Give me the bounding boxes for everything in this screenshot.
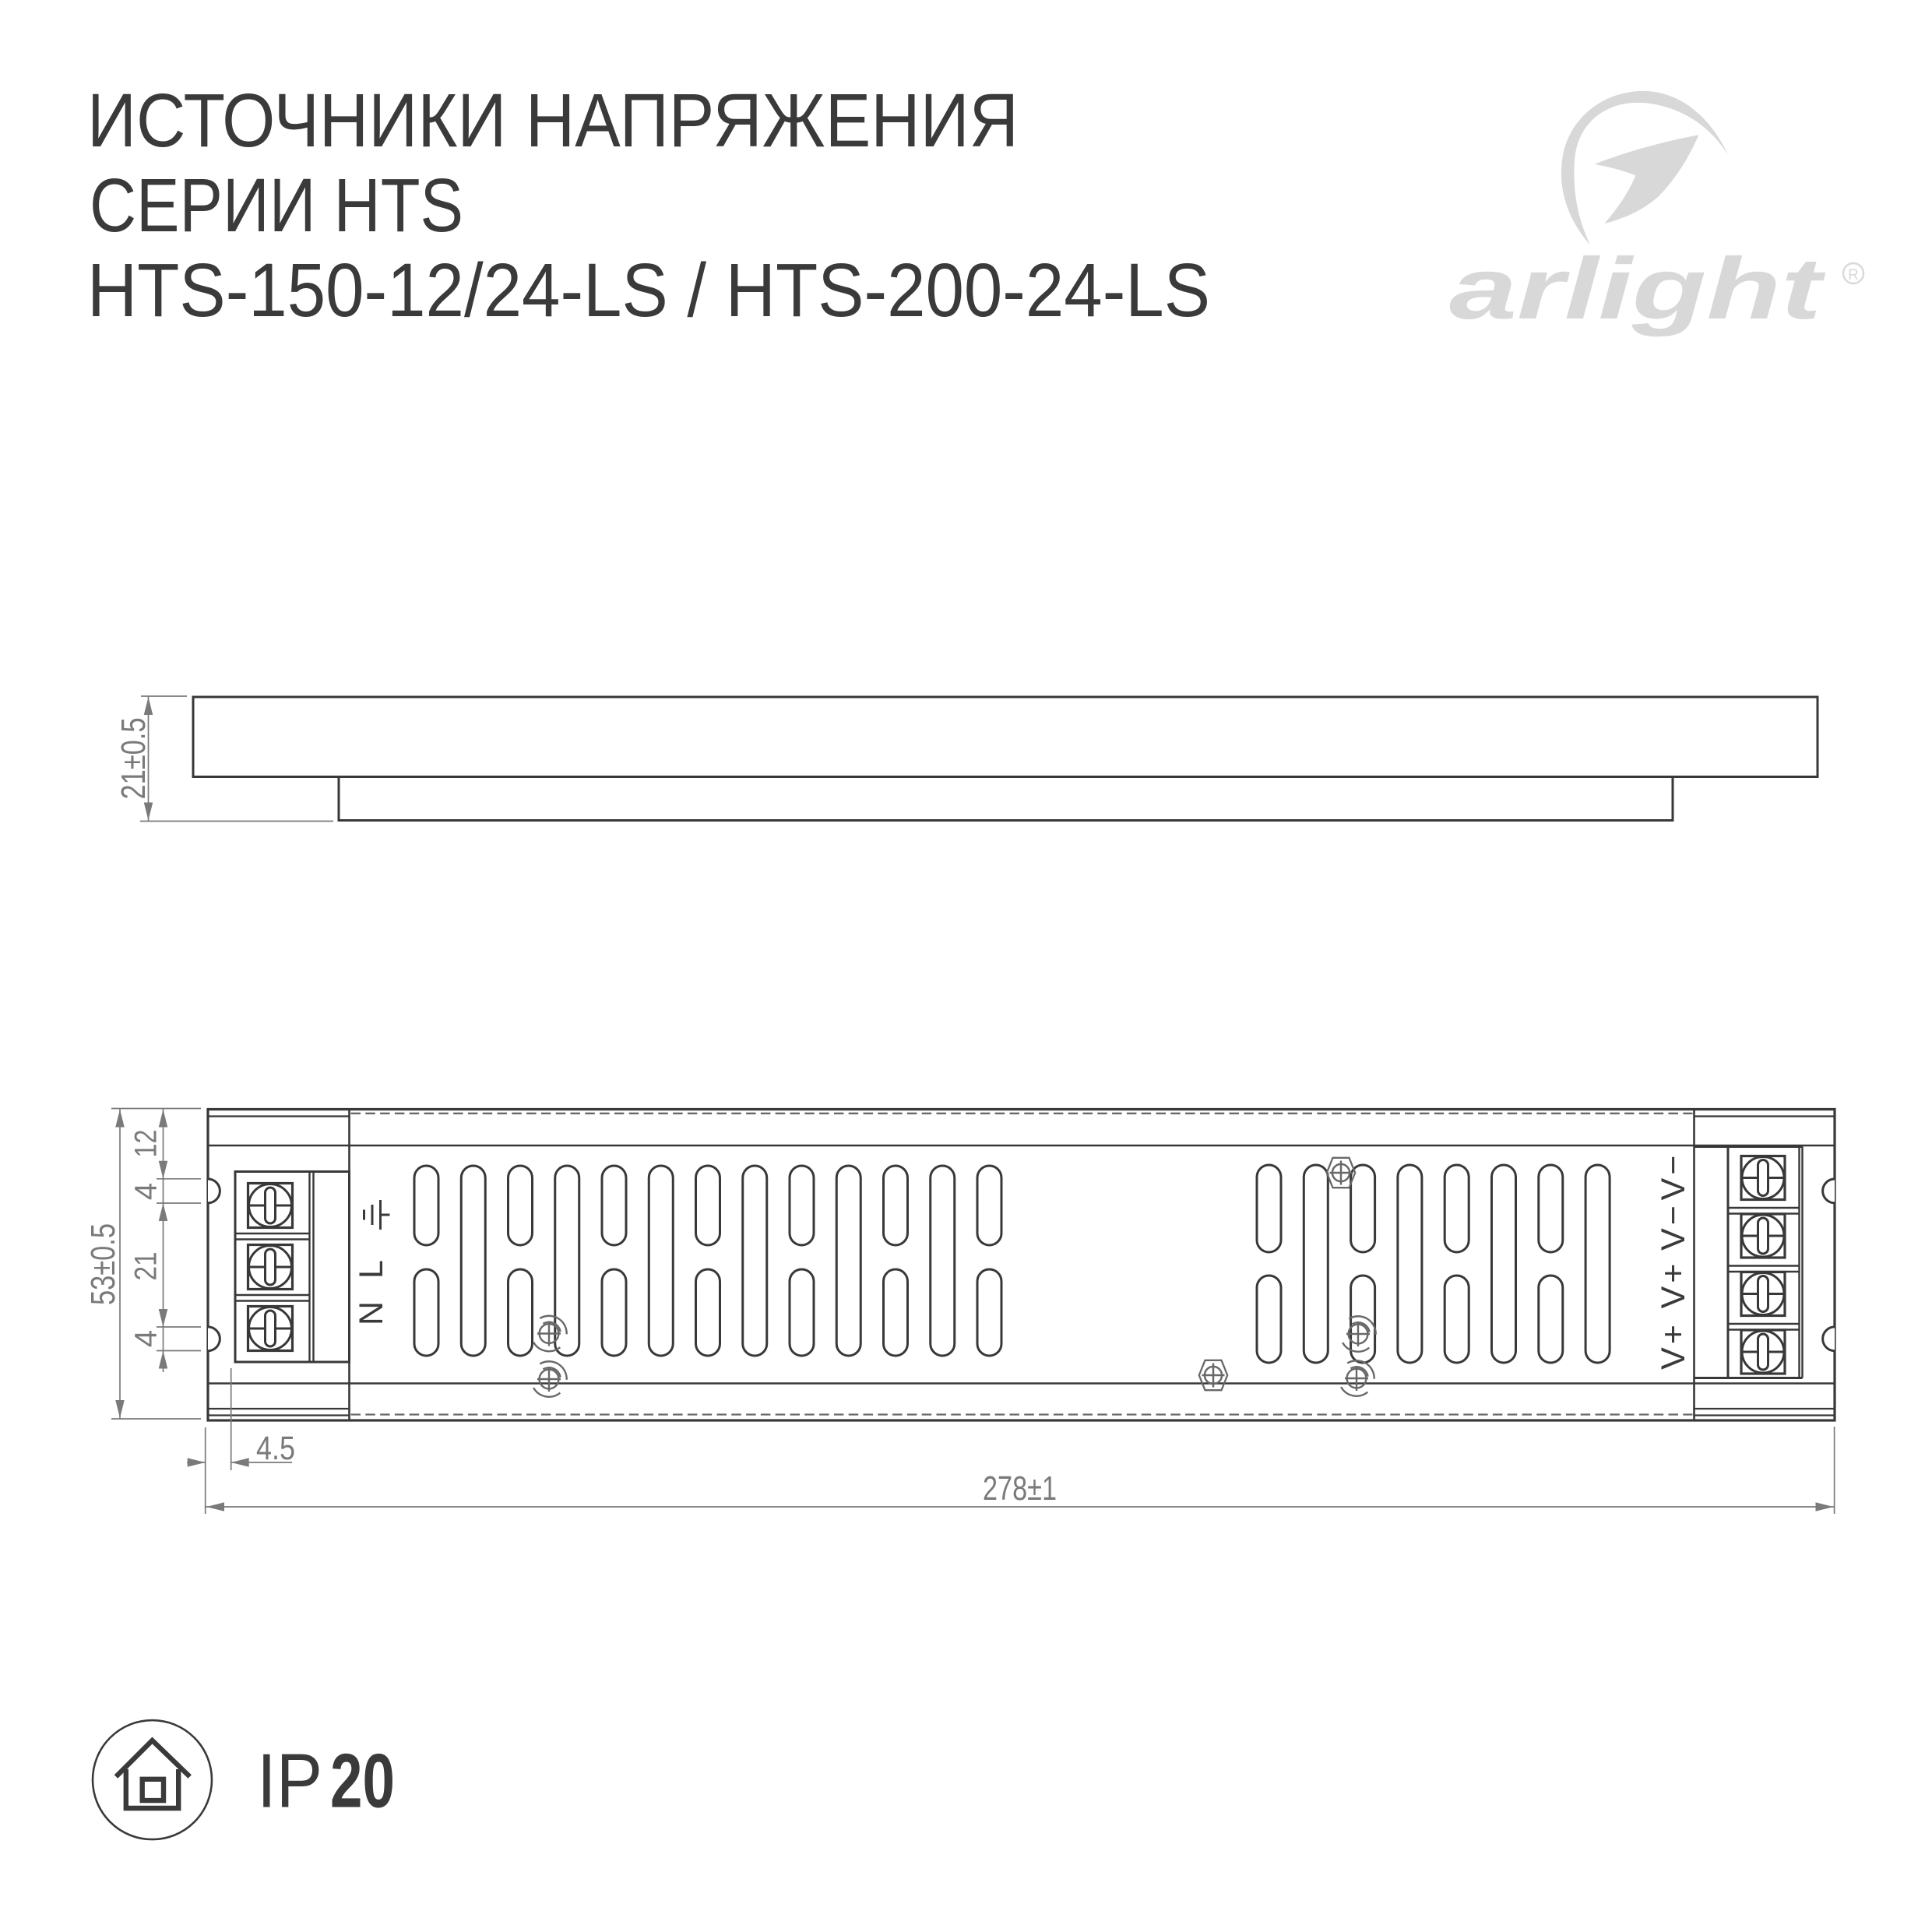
- svg-text:V+: V+: [1655, 1321, 1692, 1370]
- svg-text:4: 4: [129, 1183, 164, 1200]
- svg-text:20: 20: [330, 1737, 395, 1823]
- svg-text:53±0.5: 53±0.5: [84, 1223, 122, 1305]
- svg-text:V−: V−: [1655, 1202, 1692, 1251]
- svg-text:V+: V+: [1655, 1261, 1692, 1309]
- svg-text:4: 4: [129, 1330, 164, 1347]
- svg-text:ИСТОЧНИКИ НАПРЯЖЕНИЯ: ИСТОЧНИКИ НАПРЯЖЕНИЯ: [87, 78, 1019, 163]
- svg-text:R: R: [1848, 267, 1859, 283]
- svg-text:4.5: 4.5: [256, 1430, 295, 1467]
- svg-text:arlight: arlight: [1449, 240, 1827, 337]
- svg-text:278±1: 278±1: [983, 1469, 1057, 1508]
- svg-text:21: 21: [129, 1252, 164, 1281]
- svg-text:N: N: [353, 1301, 390, 1325]
- svg-text:L: L: [353, 1260, 390, 1279]
- svg-text:СЕРИИ HTS: СЕРИИ HTS: [90, 163, 463, 248]
- svg-text:12: 12: [129, 1130, 164, 1158]
- svg-text:21±0.5: 21±0.5: [114, 718, 153, 800]
- svg-text:IP: IP: [257, 1737, 322, 1823]
- svg-text:HTS-150-12/24-LS / HTS-200-24-: HTS-150-12/24-LS / HTS-200-24-LS: [87, 248, 1210, 333]
- svg-text:V−: V−: [1655, 1153, 1692, 1201]
